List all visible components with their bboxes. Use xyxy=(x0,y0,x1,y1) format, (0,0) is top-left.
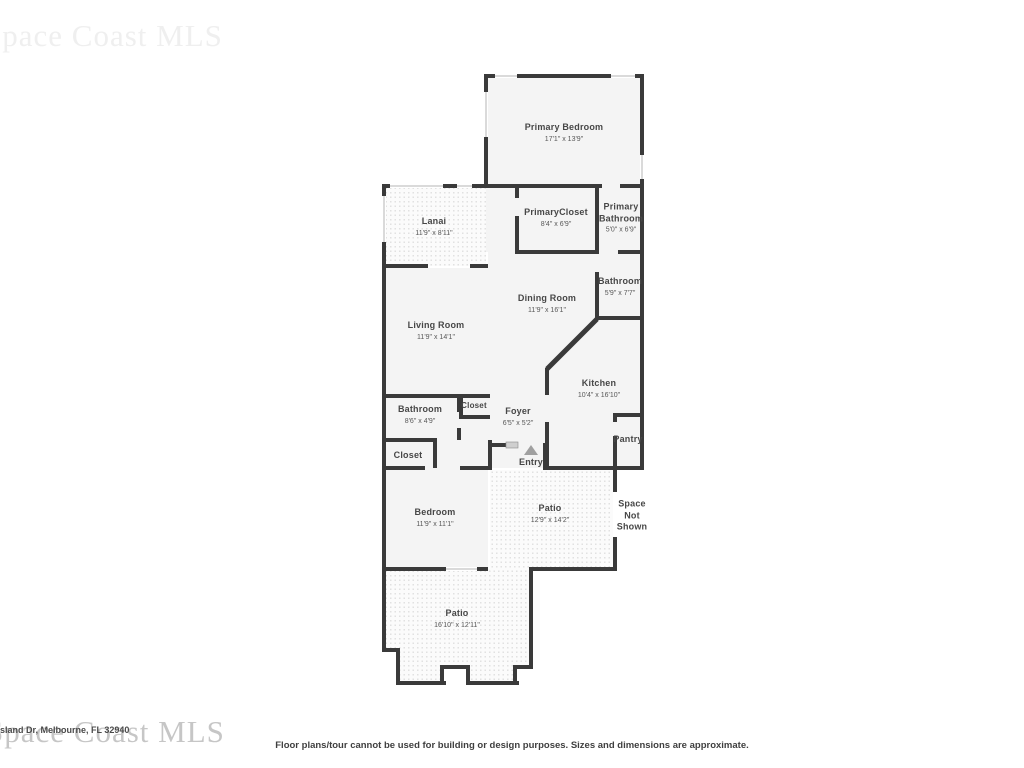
room-label-patio-middle: Patio 12'9" x 14'2" xyxy=(531,503,569,525)
room-label-closet-small: Closet xyxy=(461,401,487,411)
room-label-living-room: Living Room 11'9" x 14'1" xyxy=(408,320,465,342)
floorplan-walls xyxy=(0,0,1024,768)
room-label-primary-bathroom: Primary Bathroom 5'0" x 6'9" xyxy=(597,201,645,234)
room-label-kitchen: Kitchen 10'4" x 16'10" xyxy=(578,378,620,400)
room-label-patio-bottom: Patio 16'10" x 12'11" xyxy=(434,608,480,630)
disclaimer-text: Floor plans/tour cannot be used for buil… xyxy=(0,740,1024,751)
room-label-dining-room: Dining Room 11'9" x 16'1" xyxy=(518,293,576,315)
room-label-entry: Entry xyxy=(519,457,543,469)
room-label-primary-closet: PrimaryCloset 8'4" x 6'9" xyxy=(524,207,588,229)
room-label-bathroom-lower: Bathroom 8'6" x 4'9" xyxy=(398,404,442,426)
room-label-bedroom: Bedroom 11'9" x 11'1" xyxy=(415,507,456,529)
room-label-foyer: Foyer 6'5" x 5'2" xyxy=(503,406,534,428)
room-label-closet-left: Closet xyxy=(394,450,423,462)
entry-door-marker xyxy=(506,442,518,448)
diagonal-wall xyxy=(547,319,597,369)
triangle-up-icon xyxy=(524,445,538,455)
room-label-lanai: Lanai 11'9" x 8'11" xyxy=(415,216,452,238)
room-label-primary-bedroom: Primary Bedroom 17'1" x 13'9" xyxy=(525,122,604,144)
room-label-bathroom-upper: Bathroom 5'9" x 7'7" xyxy=(598,276,642,298)
room-label-pantry: Pantry xyxy=(613,434,642,446)
property-address: sland Dr, Melbourne, FL 32940 xyxy=(0,725,129,735)
floorplan-page: Space Coast MLS xyxy=(0,0,1024,768)
room-label-space-not-shown: Space Not Shown xyxy=(611,498,653,533)
